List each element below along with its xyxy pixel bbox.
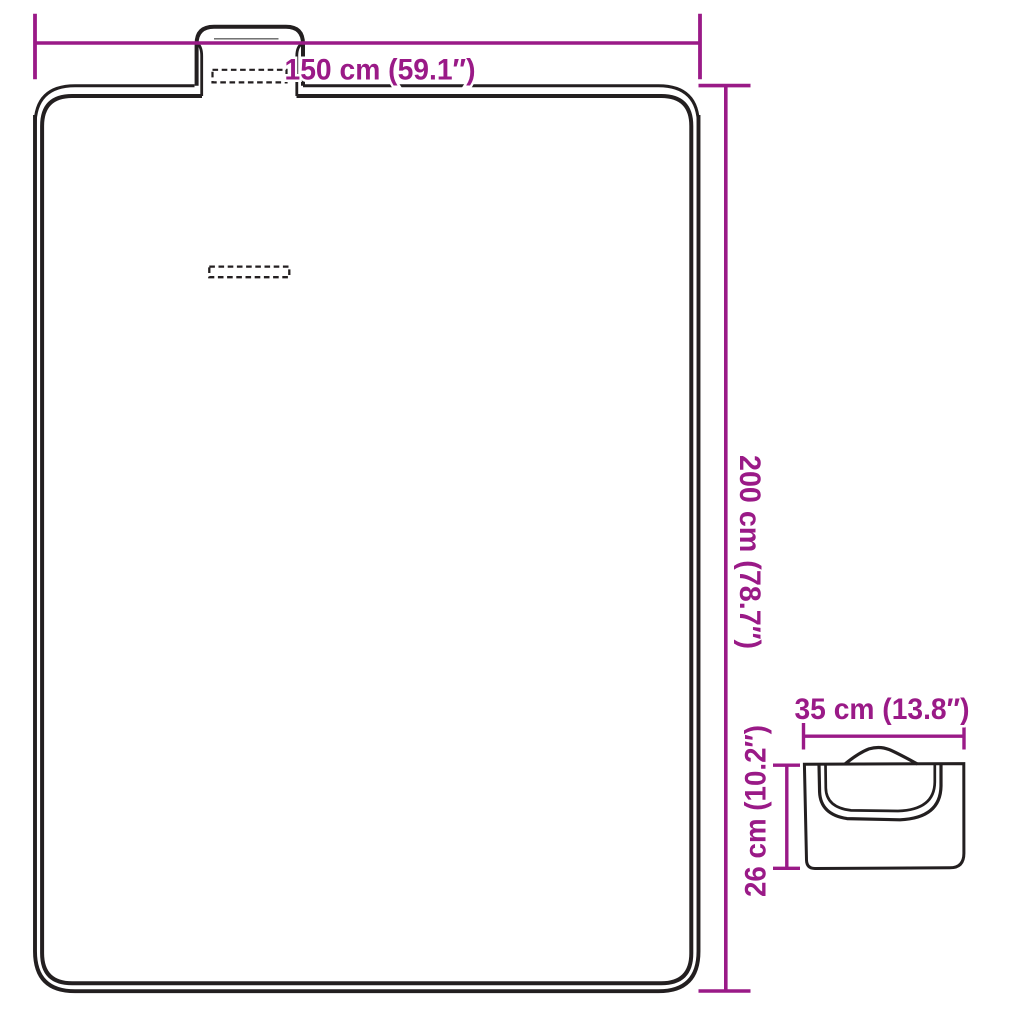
svg-text:26 cm (10.2″): 26 cm (10.2″) bbox=[740, 725, 773, 897]
svg-text:35 cm (13.8″): 35 cm (13.8″) bbox=[795, 693, 970, 726]
svg-text:150 cm (59.1″): 150 cm (59.1″) bbox=[285, 53, 476, 86]
svg-text:200 cm (78.7″): 200 cm (78.7″) bbox=[733, 455, 766, 649]
